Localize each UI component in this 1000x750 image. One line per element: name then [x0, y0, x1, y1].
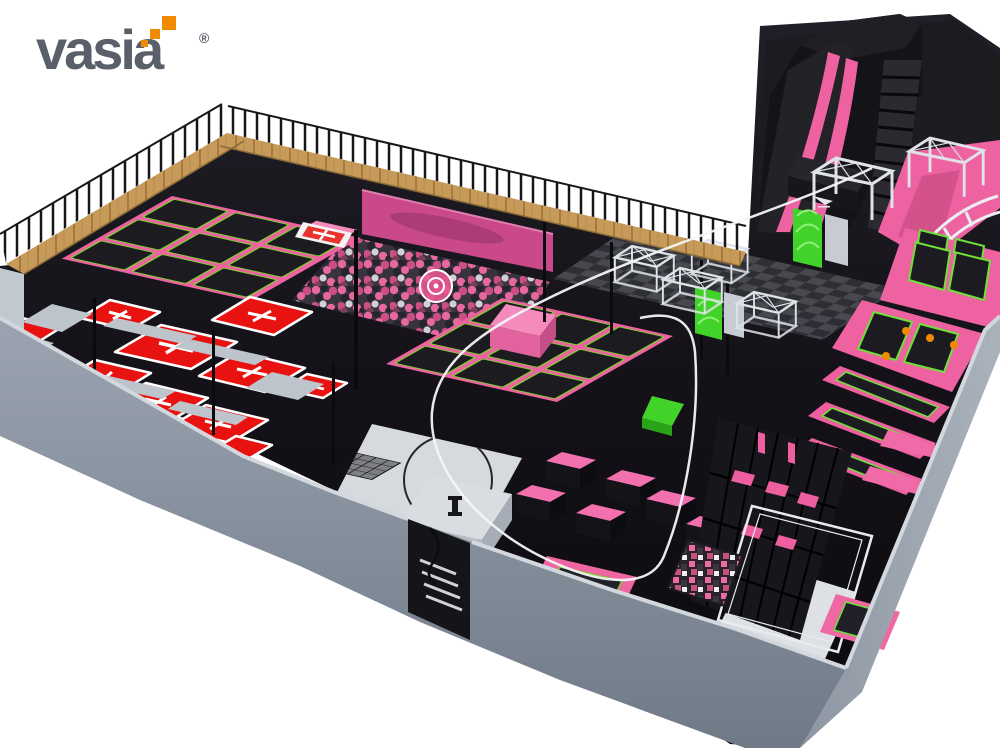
- park-render: [0, 0, 1000, 750]
- registered-mark: ®: [199, 30, 209, 46]
- ball-pit-target: [419, 269, 453, 303]
- brand-logo: vasia ®: [36, 14, 256, 94]
- logo-pixel-icon: [150, 29, 160, 39]
- logo-pixel-icon: [162, 16, 176, 30]
- trampoline-park-render: vasia ®: [0, 0, 1000, 750]
- logo-pixel-icon: [141, 40, 148, 47]
- brand-logo-text: vasia: [36, 22, 161, 78]
